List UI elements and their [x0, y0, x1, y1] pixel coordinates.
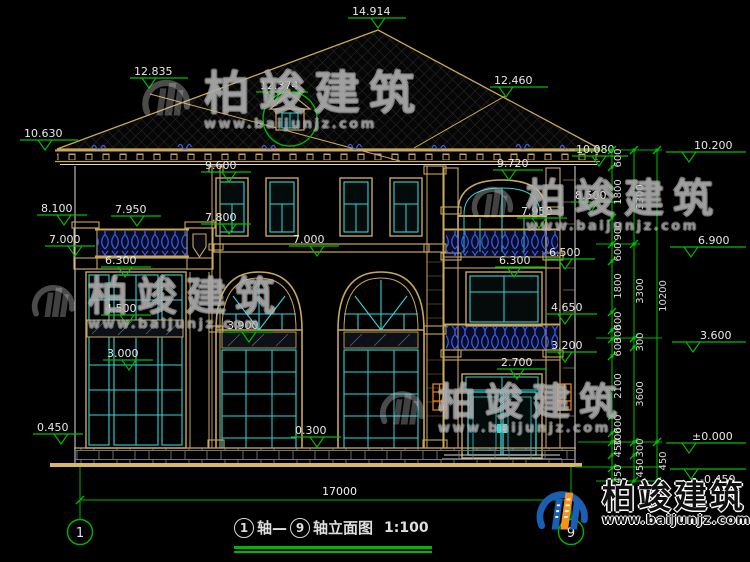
elevation-marker: 12.460: [490, 74, 548, 97]
svg-text:300: 300: [635, 438, 646, 457]
elevation-marker: 10.200: [666, 139, 746, 162]
dimension-chain-segments: 6001800900600180060030060021006003004504…: [608, 146, 624, 485]
arched-window-left: [216, 272, 302, 448]
svg-text:600: 600: [613, 148, 624, 167]
svg-text:3.900: 3.900: [227, 319, 259, 332]
svg-text:3.200: 3.200: [551, 339, 583, 352]
elevation-marker: 7.950: [111, 203, 161, 226]
svg-text:-0.450: -0.450: [700, 473, 735, 486]
pilaster-right-divider: [423, 166, 447, 448]
svg-text:450: 450: [658, 451, 669, 470]
arched-window-right: [338, 272, 424, 448]
elevation-marker: 3.000: [103, 347, 153, 370]
dimension-chain-floors: 330033003003600300450: [630, 146, 646, 485]
svg-text:3.600: 3.600: [700, 329, 732, 342]
ground-line: [50, 463, 582, 467]
axis-bubble-label: 9: [567, 526, 575, 541]
svg-text:6.500: 6.500: [549, 246, 581, 259]
svg-text:900: 900: [613, 221, 624, 240]
svg-text:9.720: 9.720: [497, 157, 529, 170]
centre-section: [214, 178, 429, 448]
svg-text:2100: 2100: [613, 373, 624, 398]
elevation-marker: 3.200: [547, 339, 597, 362]
axis-to-bubble: 9: [290, 518, 310, 538]
svg-text:10200: 10200: [658, 280, 669, 312]
svg-text:4.500: 4.500: [105, 302, 137, 315]
svg-text:4.650: 4.650: [551, 301, 583, 314]
svg-text:12.835: 12.835: [134, 65, 173, 78]
stone-base: [74, 448, 576, 463]
svg-text:14.914: 14.914: [352, 5, 391, 18]
shield-ornament: [193, 234, 206, 257]
drawing-scale: 1:100: [384, 520, 429, 536]
svg-text:3.000: 3.000: [107, 347, 139, 360]
elevation-marker: 4.650: [547, 301, 597, 324]
svg-text:6.900: 6.900: [698, 234, 730, 247]
overall-width-dimension: 17000: [322, 485, 357, 498]
svg-text:300: 300: [635, 332, 646, 351]
svg-text:12.460: 12.460: [494, 74, 533, 87]
entrance-door: [462, 374, 542, 458]
svg-text:1800: 1800: [613, 273, 624, 298]
svg-text:1800: 1800: [613, 179, 624, 204]
svg-text:3300: 3300: [635, 278, 646, 303]
svg-text:7.950: 7.950: [521, 205, 553, 218]
svg-text:2.700: 2.700: [501, 356, 533, 369]
axis-from-bubble: 1: [234, 518, 254, 538]
svg-text:450: 450: [635, 458, 646, 477]
svg-text:450: 450: [613, 438, 624, 457]
svg-text:10.200: 10.200: [694, 139, 733, 152]
cad-elevation-sheet: 14.91412.83512.37412.46010.63010.0809.60…: [0, 0, 750, 562]
svg-text:±0.000: ±0.000: [692, 430, 733, 443]
svg-text:10.630: 10.630: [24, 127, 63, 140]
svg-text:7.000: 7.000: [49, 233, 81, 246]
svg-text:9.600: 9.600: [205, 159, 237, 172]
elevation-marker: 3.600: [672, 329, 746, 352]
elevation-marker: -0.450: [670, 469, 746, 486]
svg-text:6.300: 6.300: [499, 254, 531, 267]
svg-text:3300: 3300: [635, 184, 646, 209]
elevation-drawing: 14.91412.83512.37412.46010.63010.0809.60…: [0, 0, 750, 562]
elevation-marker: 6.900: [670, 234, 746, 257]
svg-text:0.450: 0.450: [37, 421, 69, 434]
elevation-marker: 14.914: [348, 5, 406, 28]
svg-text:6.300: 6.300: [105, 254, 137, 267]
elevation-marker: 6.500: [545, 246, 595, 269]
elevation-marker: 0.300: [291, 424, 341, 447]
svg-text:8.100: 8.100: [41, 202, 73, 215]
roof: [57, 30, 600, 161]
svg-text:7.800: 7.800: [205, 211, 237, 224]
left-wing: [72, 222, 215, 448]
svg-text:8.500: 8.500: [575, 189, 607, 202]
svg-text:0.300: 0.300: [295, 424, 327, 437]
elevation-marker: ±0.000: [666, 430, 746, 453]
title-underline: [234, 546, 432, 553]
svg-text:600: 600: [613, 337, 624, 356]
svg-text:600: 600: [613, 242, 624, 261]
elevation-marker: 9.720: [493, 157, 543, 180]
title-separator: 轴—: [257, 517, 287, 538]
axis-bubble-label: 1: [76, 526, 84, 541]
svg-text:7.000: 7.000: [293, 233, 325, 246]
svg-text:7.950: 7.950: [115, 203, 147, 216]
title-text: 轴立面图: [313, 517, 373, 538]
svg-text:3600: 3600: [635, 381, 646, 406]
dimension-chain-total: 10200450: [653, 146, 669, 485]
elevation-marker: 12.835: [130, 65, 188, 88]
corner-quoins: [563, 180, 575, 416]
svg-text:12.374: 12.374: [260, 79, 299, 92]
elevation-marker: 7.000: [45, 233, 95, 256]
svg-text:450: 450: [613, 464, 624, 483]
drawing-title: 1 轴— 9 轴立面图 1:100: [234, 517, 429, 538]
third-floor-windows: [216, 178, 422, 236]
